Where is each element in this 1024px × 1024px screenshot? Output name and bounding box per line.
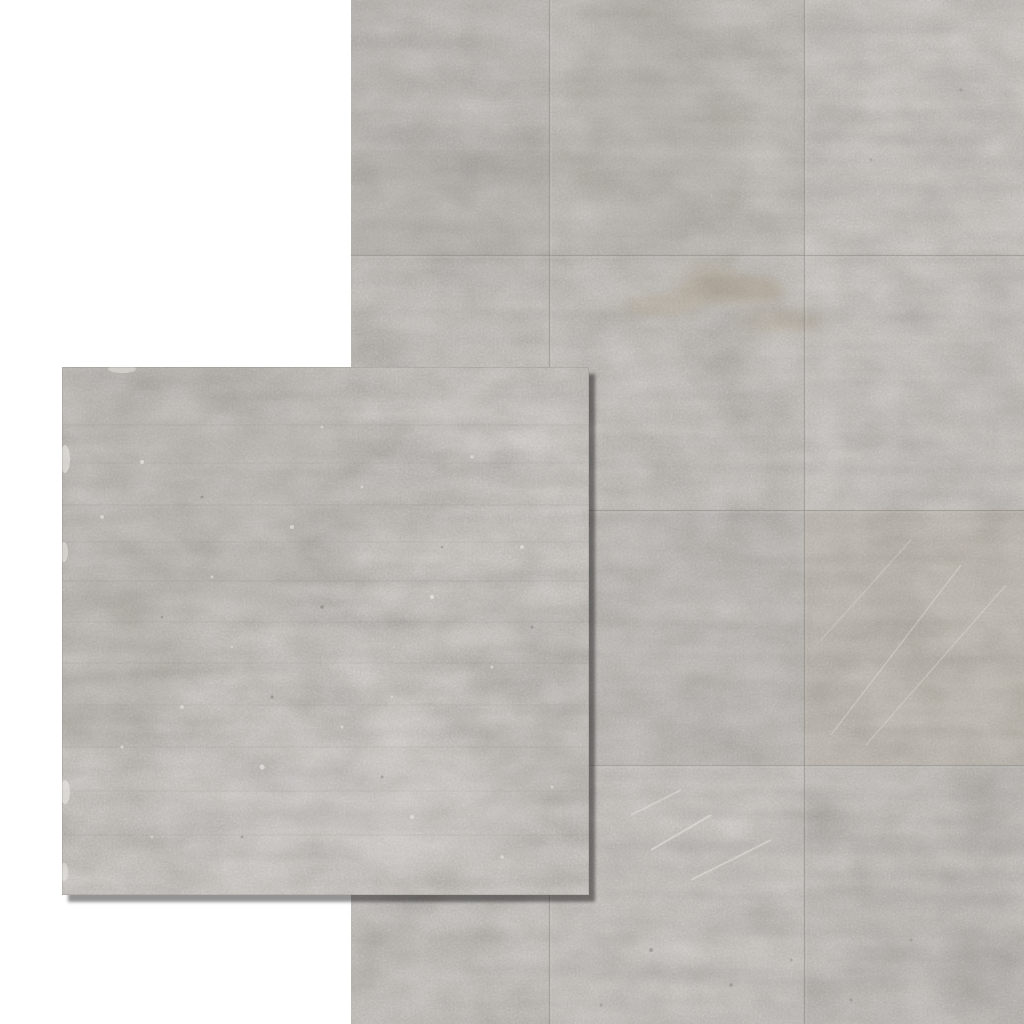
tile-swatch-photo [62,367,589,895]
swatch-concrete-texture [62,367,589,895]
product-image-canvas [0,0,1024,1024]
